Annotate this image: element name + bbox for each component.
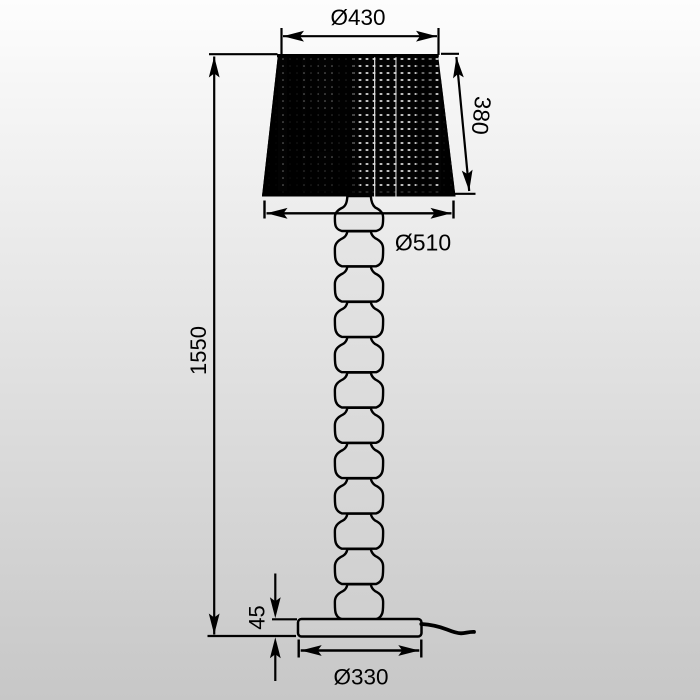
svg-text:Ø330: Ø330 (333, 665, 388, 690)
svg-text:Ø430: Ø430 (330, 5, 385, 30)
svg-text:1550: 1550 (186, 326, 211, 375)
svg-text:380: 380 (467, 95, 497, 136)
svg-text:Ø510: Ø510 (395, 230, 451, 256)
svg-text:45: 45 (244, 605, 269, 629)
